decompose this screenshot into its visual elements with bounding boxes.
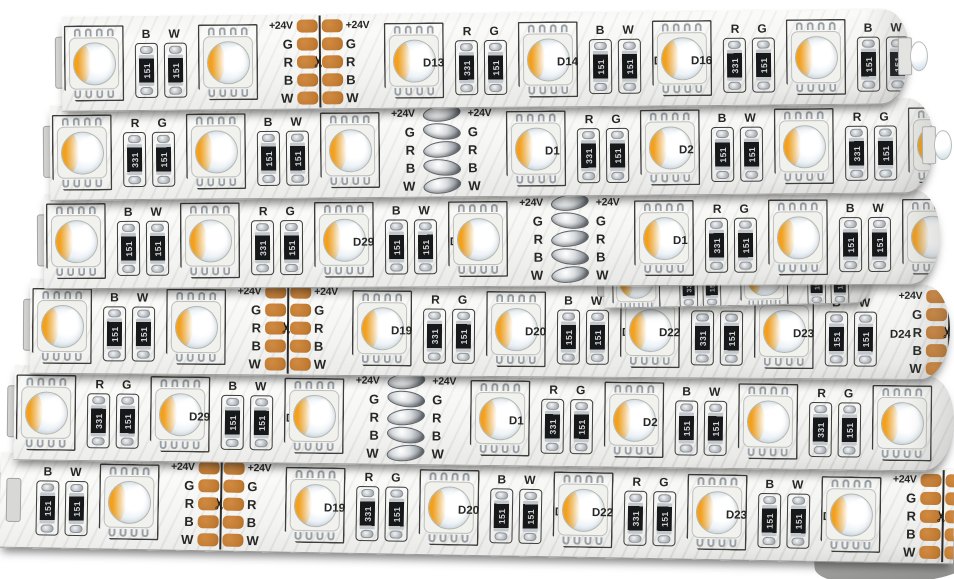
led-pins — [644, 203, 684, 211]
resistor-body: 151 — [593, 51, 608, 82]
resistor-body: 331 — [459, 52, 474, 83]
pair-label: W — [524, 474, 536, 487]
resistor-code: 151 — [793, 513, 803, 529]
led-pin — [829, 22, 836, 30]
resistor-row: 151151 — [257, 131, 309, 186]
resistor: 331 — [355, 486, 379, 541]
pair-label: B — [718, 112, 727, 125]
led-package — [171, 301, 221, 353]
led-pin — [62, 180, 69, 188]
led-pin — [748, 386, 755, 394]
cut-label: +24V — [596, 197, 626, 208]
pair-label: R — [431, 294, 440, 307]
resistor-body: 331 — [581, 140, 596, 171]
resistor-pad — [657, 535, 670, 543]
led-pin — [427, 87, 434, 95]
led-pins — [662, 23, 702, 31]
led-pin — [294, 381, 301, 389]
cut-label: G — [432, 393, 462, 406]
resistor-pad — [489, 43, 502, 51]
resistor-pad — [140, 87, 153, 95]
resistor-code: 331 — [130, 152, 140, 168]
led-pin — [95, 179, 102, 187]
resistor: 151 — [257, 131, 280, 186]
led-pins — [912, 264, 940, 272]
led-pin — [491, 266, 498, 274]
cut-point-pads: +24V+24VGGRRBBWW✂ — [885, 471, 954, 561]
led-pins — [56, 268, 96, 276]
led-pin — [160, 379, 167, 387]
edge-led-dome — [934, 130, 952, 160]
led-pins — [528, 86, 568, 94]
led-module — [36, 290, 89, 362]
resistor-body: 151 — [150, 233, 165, 264]
resistor-pad — [739, 262, 752, 270]
resistor: 151 — [606, 128, 629, 183]
resistor-body: 151 — [842, 414, 857, 445]
led-pin — [440, 472, 447, 480]
resistor-body: 151 — [858, 324, 873, 355]
led-pin — [230, 89, 237, 97]
resistor: 151 — [250, 395, 274, 450]
resistor-code: 151 — [122, 413, 132, 429]
resistor-pad — [457, 312, 470, 320]
led-pin — [502, 383, 509, 391]
resistor-pad — [523, 533, 536, 541]
resistor-pad — [791, 537, 804, 545]
pair-label: B — [682, 385, 691, 398]
resistor-pad — [582, 131, 595, 139]
led-pin — [324, 267, 331, 275]
led-pin — [67, 206, 74, 214]
resistor-row: 331151 — [455, 40, 507, 95]
resistor-code: 331 — [630, 510, 640, 526]
pair-label: G — [879, 111, 888, 124]
resistor-code: 151 — [227, 415, 237, 431]
led-pin — [132, 467, 139, 475]
resistor-pair: RG331151 — [117, 117, 182, 188]
resistor-code: 151 — [831, 331, 841, 347]
cut-label: G — [513, 214, 543, 227]
led-pin — [229, 178, 236, 186]
resistor-pad — [255, 439, 268, 447]
resistor-row: 331151 — [705, 218, 757, 273]
pair-label: R — [95, 378, 104, 391]
led-pin — [190, 206, 197, 214]
resistor-body: 151 — [657, 503, 673, 534]
led-pins — [42, 291, 82, 299]
resistor-pad — [562, 354, 575, 362]
resistor-pad — [121, 438, 134, 446]
led-pin — [538, 114, 545, 122]
led-pin — [241, 27, 248, 35]
resistor: 151 — [164, 43, 187, 98]
solder-joint — [385, 443, 425, 463]
cut-label: W — [314, 357, 344, 370]
resistor-pair: BW151151 — [129, 28, 194, 99]
diode-label: D1 — [545, 146, 560, 158]
led-pin — [373, 355, 380, 363]
edge-led — [898, 37, 928, 75]
cut-label: G — [247, 479, 277, 493]
led-pin — [218, 178, 225, 186]
resistor-code: 331 — [258, 240, 268, 256]
resistor-code: 151 — [391, 506, 401, 522]
cut-label: +24V — [165, 461, 195, 472]
led-pins — [830, 541, 870, 550]
led-module — [778, 110, 831, 182]
resistor-pad — [460, 84, 473, 92]
led-pins — [294, 381, 334, 389]
resistor-pad — [728, 41, 741, 49]
led-pins — [620, 302, 652, 308]
resistor-pad — [262, 175, 275, 183]
led-package — [51, 215, 101, 267]
resistor-code: 151 — [496, 508, 506, 524]
led-pin — [491, 445, 498, 453]
led-pin — [759, 448, 766, 456]
pair-label: B — [564, 295, 573, 308]
led-pin — [209, 354, 216, 362]
led-pin — [362, 355, 369, 363]
resistor-code: 151 — [863, 56, 873, 72]
led-pin — [241, 89, 248, 97]
cut-label: B — [231, 339, 261, 352]
cut-label: +24V — [886, 474, 916, 485]
led-pin — [56, 206, 63, 214]
resistor: 151 — [152, 132, 175, 187]
pair-labels: BW — [392, 204, 430, 217]
pair-label: G — [157, 117, 166, 130]
resistor: 331 — [123, 132, 146, 187]
led-pins — [330, 177, 370, 185]
resistor-pair: RG331151 — [839, 110, 904, 181]
pair-label: B — [765, 478, 774, 491]
led-pins — [778, 202, 818, 210]
led-pin — [893, 450, 900, 458]
led-package — [773, 211, 823, 263]
resistor-code: 151 — [153, 240, 163, 256]
led-lens — [174, 305, 217, 348]
led-pins — [176, 292, 216, 300]
pair-labels: RG — [364, 471, 400, 485]
led-pins — [458, 266, 498, 274]
led-pin — [327, 381, 334, 389]
pair-label: B — [596, 24, 605, 37]
cut-label: B — [385, 161, 415, 174]
led-pin — [182, 379, 189, 387]
resistor-code: 331 — [583, 148, 593, 164]
pair-label: G — [122, 379, 132, 392]
copper-pad — [197, 533, 218, 546]
resistor-pad — [814, 405, 827, 413]
resistor-pad — [128, 176, 141, 184]
resistor-pad — [745, 130, 758, 138]
resistor-pad — [157, 135, 170, 143]
led-pin — [363, 115, 370, 123]
resistor: 151 — [786, 493, 810, 548]
led-lens — [910, 215, 940, 258]
resistor-pad — [419, 263, 432, 271]
resistor-row: 151151 — [825, 311, 877, 366]
resistor-code: 151 — [71, 501, 81, 517]
led-pins — [362, 293, 402, 301]
resistor-pair: RG331151D1 — [535, 384, 600, 455]
resistor-pad — [658, 494, 671, 502]
led-pins — [882, 388, 922, 396]
resistor-pad — [108, 309, 121, 317]
led-pin — [491, 204, 498, 212]
diode-label: D2 — [643, 417, 658, 429]
led-pin — [176, 354, 183, 362]
led-lens — [24, 391, 68, 435]
resistor: 151 — [452, 309, 475, 364]
pair-label: B — [392, 204, 401, 217]
led-package — [37, 300, 87, 352]
resistor-row: 151151 — [385, 219, 437, 274]
resistor: 331 — [423, 309, 446, 364]
led-module — [772, 201, 824, 273]
led-pins — [480, 445, 520, 453]
diode-label: D19 — [324, 503, 345, 515]
resistor-code: 151 — [563, 329, 573, 345]
led-module — [56, 116, 109, 188]
led-lens — [456, 217, 499, 260]
resistor-row: 331151 — [845, 125, 897, 180]
led-pins — [784, 173, 824, 181]
led-pin — [516, 176, 523, 184]
led-pin — [549, 175, 556, 183]
resistor-row: 331151 — [87, 393, 140, 449]
led-pins — [650, 174, 690, 182]
led-package — [57, 126, 107, 178]
resistor-pad — [92, 396, 105, 404]
copper-pad — [296, 19, 317, 32]
led-pins — [324, 205, 364, 213]
led-pin — [306, 470, 313, 478]
edge-led-dome — [910, 41, 928, 71]
pair-label: R — [364, 471, 373, 484]
led-pin — [196, 179, 203, 187]
led-lens — [107, 480, 151, 524]
led-pin — [439, 534, 446, 542]
pair-labels: BW — [846, 202, 884, 215]
led-pin — [625, 385, 632, 393]
cut-label: +24V — [349, 375, 379, 386]
led-pin — [201, 267, 208, 275]
pair-label: B — [124, 206, 133, 219]
led-pins — [516, 113, 556, 121]
led-package — [104, 475, 155, 528]
resistor-pad — [361, 489, 374, 497]
led-pin — [62, 118, 69, 126]
scissors-icon: ✂ — [309, 55, 329, 69]
resistor: 151 — [704, 401, 728, 456]
led-pin — [75, 291, 82, 299]
resistor: 151 — [652, 491, 676, 546]
diode-label: D14 — [557, 56, 578, 68]
led-pin — [650, 175, 657, 183]
solder-joint-group: +24V+24VGGRRBBWW — [348, 372, 465, 461]
resistor-pad — [623, 42, 636, 50]
led-pin — [797, 358, 804, 366]
resistor-pad — [680, 403, 693, 411]
led-pin — [89, 206, 96, 214]
resistor-row: 151151 — [757, 493, 810, 549]
resistor-pad — [716, 171, 729, 179]
led-lens — [206, 41, 249, 84]
pair-labels: RG — [632, 476, 668, 490]
resistor-code: 151 — [490, 60, 500, 76]
resistor-pad — [70, 484, 83, 492]
resistor: 151 — [838, 402, 862, 457]
led-pin — [781, 387, 788, 395]
led-pin — [655, 265, 662, 273]
led-pin — [638, 303, 644, 309]
resistor-code: 151 — [844, 422, 854, 438]
led-pin — [550, 86, 557, 94]
led-pin — [789, 264, 796, 272]
led-pins — [394, 25, 434, 33]
cut-label: R — [513, 232, 543, 245]
led-pin — [48, 440, 55, 448]
copper-pad — [297, 73, 318, 86]
resistor-pad — [390, 263, 403, 271]
copper-pad — [197, 515, 218, 528]
led-pin — [539, 86, 546, 94]
led-pin — [527, 114, 534, 122]
pair-label: R — [549, 384, 558, 397]
resistor-pad — [862, 81, 875, 89]
led-pins — [614, 385, 654, 393]
led-pin — [929, 110, 935, 118]
led-pin — [528, 87, 535, 95]
led-lens — [782, 125, 825, 168]
led-pin — [328, 470, 335, 478]
led-pin — [198, 292, 205, 300]
led-pin — [182, 441, 189, 449]
led-pin — [730, 477, 737, 485]
pair-labels: BW — [110, 291, 148, 304]
led-pin — [796, 22, 803, 30]
led-pin — [95, 117, 102, 125]
resistor-code: 331 — [429, 328, 439, 344]
resistor-pad — [157, 176, 170, 184]
resistor-pad — [843, 405, 856, 413]
led-pin — [357, 205, 364, 213]
led-pin — [373, 293, 380, 301]
solder-joint — [550, 264, 590, 285]
led-pin — [187, 354, 194, 362]
led-pin — [630, 357, 637, 365]
resistor-pad — [494, 532, 507, 540]
resistor-pad — [256, 223, 269, 231]
led-pin — [341, 177, 348, 185]
resistor-pad — [390, 222, 403, 230]
led-module — [824, 478, 877, 551]
led-pin — [677, 203, 684, 211]
led-pin — [527, 176, 534, 184]
resistor-pad — [495, 491, 508, 499]
resistor: 151 — [414, 219, 437, 274]
resistor-row: 151151 — [711, 127, 763, 182]
resistor-row: 331151 — [423, 309, 475, 364]
led-pin — [770, 448, 777, 456]
led-pin — [327, 443, 334, 451]
led-pin — [346, 205, 353, 213]
led-pin — [78, 268, 85, 276]
led-pin — [673, 23, 680, 31]
led-pin — [209, 292, 216, 300]
resistor-body: 151 — [139, 55, 154, 86]
resistor-row: 331151 — [723, 37, 775, 92]
copper-pad — [945, 474, 954, 487]
led-pin — [528, 25, 535, 33]
resistor-code: 151 — [845, 237, 855, 253]
led-pin — [684, 23, 691, 31]
led-pins — [796, 22, 836, 30]
resistor: 151 — [103, 306, 126, 361]
cut-label: W — [231, 357, 261, 370]
resistor-body: 151 — [168, 55, 183, 86]
pair-labels: BW — [564, 295, 602, 308]
resistor-pad — [680, 444, 693, 452]
resistor-pair: BW151151D2D3 — [705, 112, 770, 183]
resistor-body: 151 — [610, 140, 625, 171]
pair-labels: BW — [596, 24, 634, 37]
led-pin — [450, 535, 457, 543]
copper-pad — [289, 339, 310, 352]
led-pin — [672, 174, 679, 182]
resistor-pair: BW151151 — [29, 465, 94, 536]
pair-labels: RG — [259, 205, 295, 218]
resistor-row: 331151 — [809, 402, 862, 458]
resistor-code: 151 — [710, 420, 720, 436]
led-pin — [305, 532, 312, 540]
led-pin — [462, 473, 469, 481]
resistor-pad — [873, 220, 886, 228]
solder-joint-group: +24V+24VGGRRBBWW — [513, 194, 629, 283]
led-lens — [60, 131, 103, 174]
pair-label: B — [43, 465, 52, 478]
resistor-row: 151151 — [489, 488, 542, 544]
resistor-pad — [546, 443, 559, 451]
led-pin — [294, 443, 301, 451]
resistor-row: 331151 — [691, 310, 743, 365]
resistor-pad — [285, 264, 298, 272]
resistor-pad — [390, 489, 403, 497]
resistor-pad — [226, 439, 239, 447]
resistor-pad — [710, 221, 723, 229]
led-pin — [330, 177, 337, 185]
resistor: 331 — [623, 491, 647, 546]
resistor-pad — [710, 262, 723, 270]
resistor-pad — [151, 224, 164, 232]
resistor-row: 151151 — [117, 221, 169, 276]
resistor-body: 151 — [724, 323, 739, 354]
led-pin — [807, 22, 814, 30]
led-pin — [458, 266, 465, 274]
resistor: 151 — [484, 40, 507, 95]
pair-labels: BW — [864, 21, 902, 34]
resistor-body: 331 — [709, 230, 724, 261]
led-pins — [324, 267, 364, 275]
resistor-pad — [41, 483, 54, 491]
resistor-code: 151 — [171, 62, 181, 78]
resistor-code: 151 — [681, 420, 691, 436]
led-pin — [811, 264, 818, 272]
led-pin — [893, 388, 900, 396]
